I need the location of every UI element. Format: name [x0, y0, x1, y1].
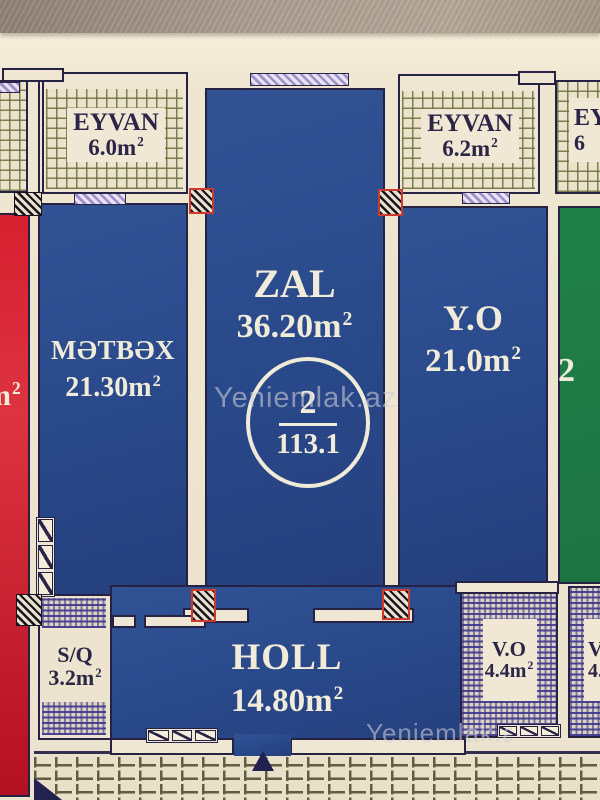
red-room-area-fragment: m2 [0, 379, 21, 413]
room-area: 14.80m2 [231, 684, 343, 719]
room-label-sq: S/Q 3.2m2 [40, 630, 110, 702]
area-value: 6.2 [442, 136, 471, 161]
watermark-center: Yeniemlak.az [214, 382, 397, 415]
window-left-edge [0, 82, 20, 93]
area-unit: m [313, 308, 341, 345]
area-value: 21.0 [425, 343, 483, 379]
room-area: 6 [574, 131, 585, 154]
area-unit-sup: 2 [527, 659, 533, 672]
room-name: V [588, 638, 600, 660]
room-green-right-partial [558, 206, 600, 584]
room-label-zal: ZAL 36.20m2 [207, 248, 382, 360]
column-zal-top-right [378, 189, 403, 216]
green-room-area-fragment: 2 [558, 352, 575, 390]
area-unit: m [76, 665, 94, 690]
room-name: S/Q [57, 643, 92, 666]
room-red-left-partial [0, 213, 30, 797]
area-unit: m [117, 135, 136, 160]
total-area: 113.1 [276, 430, 340, 459]
area-unit: m [128, 372, 151, 403]
room-name: MƏTBƏX [51, 336, 175, 364]
room-name: ZAL [253, 263, 335, 305]
room-label-vo-right: V 4. [584, 620, 600, 700]
column-left-bottom [16, 594, 42, 626]
room-area: 36.20m2 [237, 309, 353, 345]
room-name: V.O [492, 638, 526, 660]
column-zal-top-left [189, 188, 214, 214]
area-value: 6.0 [88, 135, 117, 160]
room-name: Y.O [443, 300, 503, 338]
floorplan-photo: { "photo": { "watermark_center": "Yeniem… [0, 0, 600, 800]
area-value: 4.4 [485, 660, 510, 682]
door-swing-marks-metbex [36, 517, 55, 597]
area-unit-sup: 2 [137, 134, 144, 149]
room-label-eyvan-right: EYVAN 6.2m2 [418, 104, 522, 168]
area-value: 21.30 [65, 372, 128, 403]
area-unit: m [471, 136, 490, 161]
area-value: 3.2 [48, 665, 76, 690]
window-zal-top [250, 73, 349, 86]
room-name: EY [574, 106, 600, 131]
sq-tile-hatch-bottom [42, 702, 106, 735]
room-label-eyvan-left: EYVAN 6.0m2 [68, 104, 164, 166]
column-zal-bottom-right [382, 589, 410, 620]
room-area: 3.2m2 [48, 666, 101, 689]
room-label-vo: V.O 4.4m2 [482, 620, 536, 700]
room-area: 4.4m2 [485, 661, 533, 682]
area-unit-sup: 2 [334, 683, 344, 704]
area-unit-sup: 2 [511, 343, 521, 364]
area-value: 14.80 [231, 683, 305, 719]
room-area: 4. [588, 661, 600, 682]
column-left-top [14, 192, 42, 216]
area-unit-sup: 2 [95, 666, 101, 680]
room-area: 6.0m2 [73, 136, 159, 160]
corner-arrow-icon [34, 778, 62, 800]
badge-divider [279, 423, 337, 426]
area-value: 36.20 [237, 308, 314, 345]
area-unit-sup: 2 [153, 372, 161, 390]
entrance-arrow-icon [252, 751, 274, 771]
wall-tcap-right-horizontal [518, 71, 556, 85]
walkway-brick-pattern [34, 751, 600, 800]
room-name: EYVAN [73, 110, 159, 136]
room-label-eyvan-far-right: EY 6 [569, 98, 600, 162]
window-yo-top [462, 192, 510, 204]
sq-tile-hatch-top [42, 598, 106, 628]
area-unit: m [0, 379, 11, 412]
room-area: 21.0m2 [425, 344, 521, 379]
room-area: 21.30m2 [65, 373, 160, 402]
window-metbex-top [74, 193, 126, 205]
area-unit-sup: 2 [342, 308, 352, 330]
room-name: HOLL [232, 639, 343, 678]
room-label-metbex: MƏTBƏX 21.30m2 [40, 305, 186, 433]
area-unit: m [483, 343, 511, 379]
wall-yo-bottom [455, 581, 559, 594]
room-name: EYVAN [427, 111, 513, 137]
area-unit-sup: 2 [12, 378, 21, 398]
wall-tcap-left-vertical [26, 80, 40, 196]
room-area: 6.2m2 [427, 137, 513, 161]
area-unit-sup: 2 [491, 135, 498, 150]
column-zal-bottom-left [191, 589, 216, 622]
area-unit: m [510, 660, 527, 682]
photo-background-top [0, 0, 600, 33]
watermark-bottom: Yeniemlak.az [366, 718, 512, 750]
unit-badge: 2 113.1 [246, 357, 370, 488]
area-unit: m [305, 683, 333, 719]
room-label-yo: Y.O 21.0m2 [400, 276, 546, 402]
